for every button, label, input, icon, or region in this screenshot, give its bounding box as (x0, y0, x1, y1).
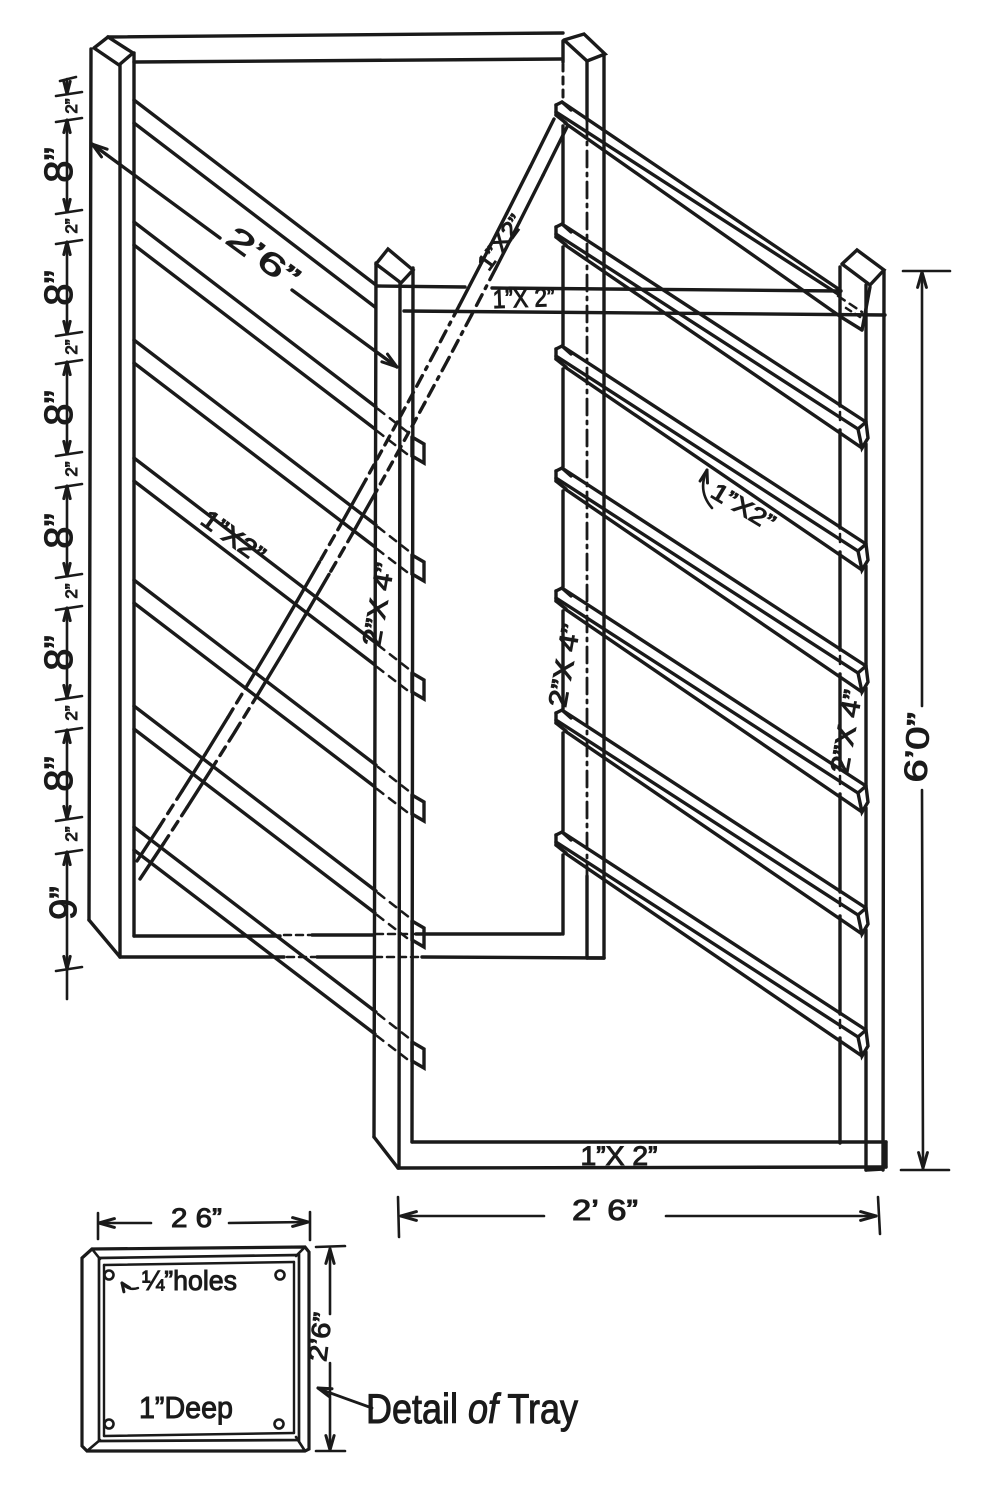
svg-text:2”: 2” (62, 218, 81, 233)
svg-text:6’0”: 6’0” (897, 712, 937, 784)
svg-text:2’ 6”: 2’ 6” (572, 1195, 638, 1227)
svg-text:1”X 2”: 1”X 2” (581, 1141, 658, 1171)
svg-text:2”: 2” (62, 339, 81, 354)
svg-text:2 6”: 2 6” (171, 1203, 222, 1233)
svg-text:8”: 8” (37, 513, 81, 549)
svg-text:9”: 9” (43, 886, 85, 920)
svg-text:Detail of Tray: Detail of Tray (366, 1385, 578, 1432)
svg-text:2”: 2” (62, 705, 81, 720)
svg-text:2”: 2” (62, 461, 81, 476)
svg-text:8”: 8” (37, 635, 81, 671)
svg-text:8”: 8” (37, 756, 81, 792)
svg-text:2”: 2” (62, 826, 81, 841)
svg-text:2”: 2” (62, 98, 81, 113)
svg-text:8”: 8” (37, 270, 81, 306)
svg-text:8”: 8” (37, 147, 81, 183)
svg-text:2’6”: 2’6” (302, 1311, 338, 1363)
svg-text:¼”holes: ¼”holes (142, 1265, 237, 1296)
svg-text:1”X 2”: 1”X 2” (492, 282, 555, 314)
svg-text:8”: 8” (37, 390, 81, 426)
svg-text:1”Deep: 1”Deep (139, 1390, 233, 1425)
svg-text:2”: 2” (62, 583, 81, 598)
